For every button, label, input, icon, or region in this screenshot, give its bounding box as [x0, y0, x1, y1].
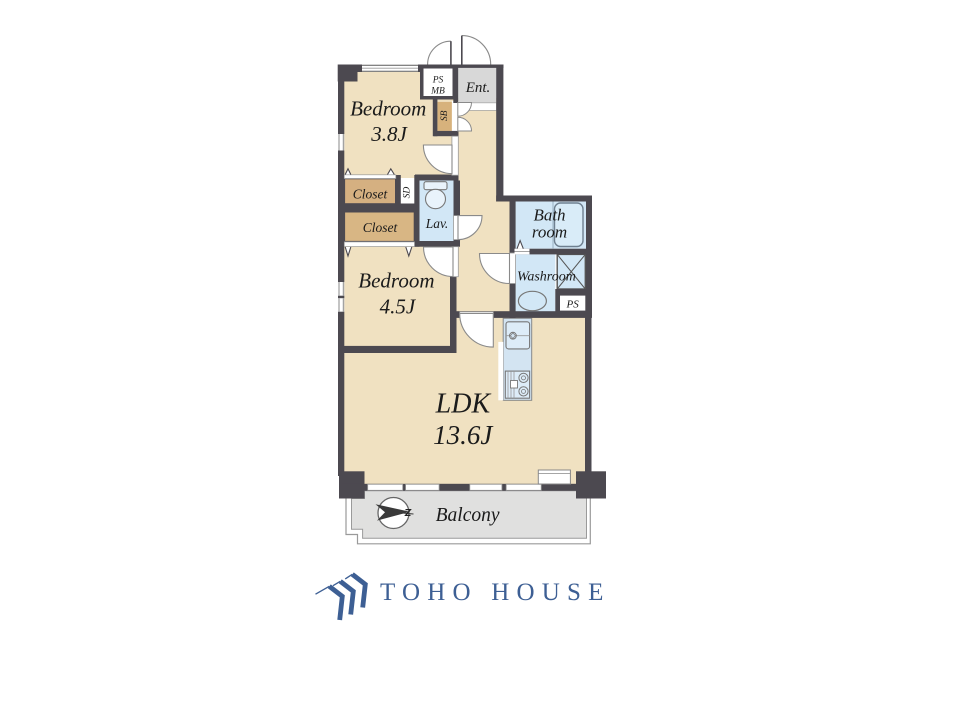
- svg-text:13.6J: 13.6J: [433, 420, 494, 450]
- svg-text:Balcony: Balcony: [436, 505, 500, 526]
- svg-text:Ent.: Ent.: [465, 80, 491, 96]
- svg-text:PS: PS: [565, 299, 579, 311]
- svg-text:Lav.: Lav.: [425, 216, 449, 231]
- svg-text:3.8J: 3.8J: [370, 122, 408, 146]
- svg-text:room: room: [532, 223, 567, 242]
- svg-text:LDK: LDK: [435, 389, 492, 420]
- svg-text:Bedroom: Bedroom: [358, 269, 434, 293]
- svg-text:TOHO HOUSE: TOHO HOUSE: [380, 579, 611, 606]
- svg-text:Closet: Closet: [363, 220, 399, 235]
- svg-text:Closet: Closet: [353, 187, 389, 202]
- svg-text:MB: MB: [430, 87, 445, 97]
- svg-text:Washroom: Washroom: [517, 270, 576, 285]
- svg-text:SD: SD: [403, 187, 413, 199]
- svg-text:SB: SB: [440, 110, 450, 121]
- svg-text:PS: PS: [432, 76, 444, 86]
- svg-text:4.5J: 4.5J: [380, 295, 417, 319]
- svg-text:Bedroom: Bedroom: [350, 97, 426, 121]
